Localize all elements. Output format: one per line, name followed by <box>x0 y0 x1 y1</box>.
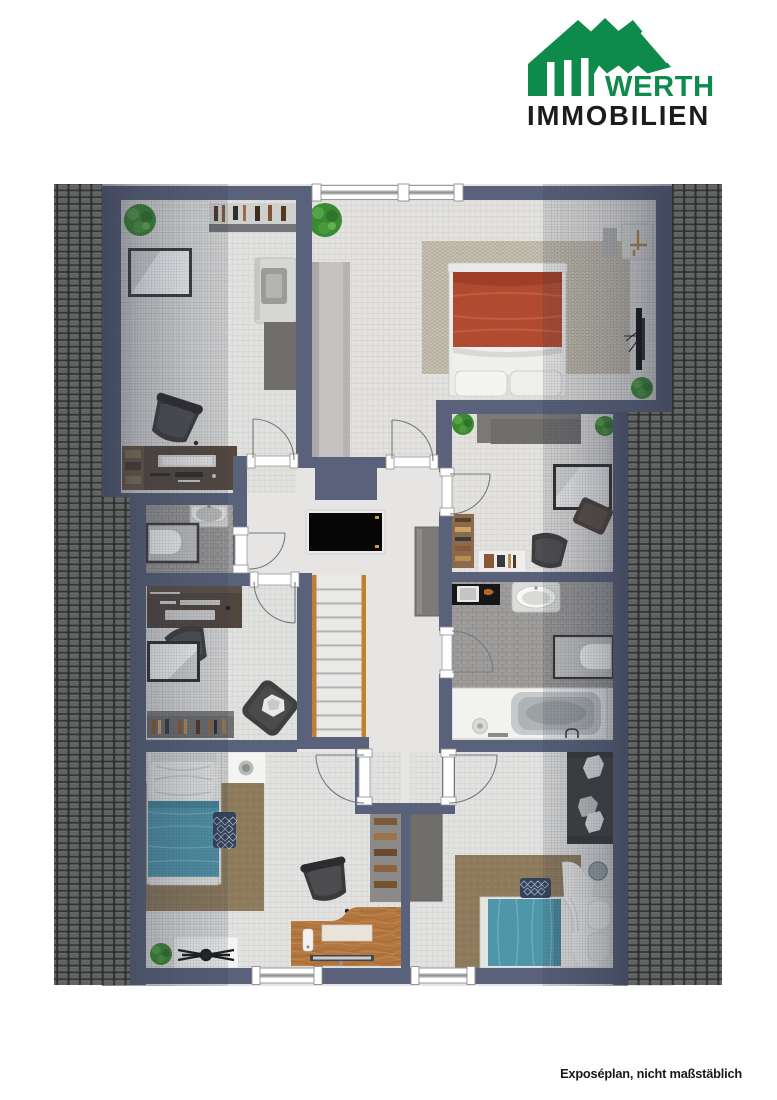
svg-text:IMMOBILIEN: IMMOBILIEN <box>527 100 710 131</box>
svg-text:Exposéplan, nicht maßstäblich: Exposéplan, nicht maßstäblich <box>560 1066 742 1081</box>
svg-text:WERTH: WERTH <box>605 71 715 103</box>
